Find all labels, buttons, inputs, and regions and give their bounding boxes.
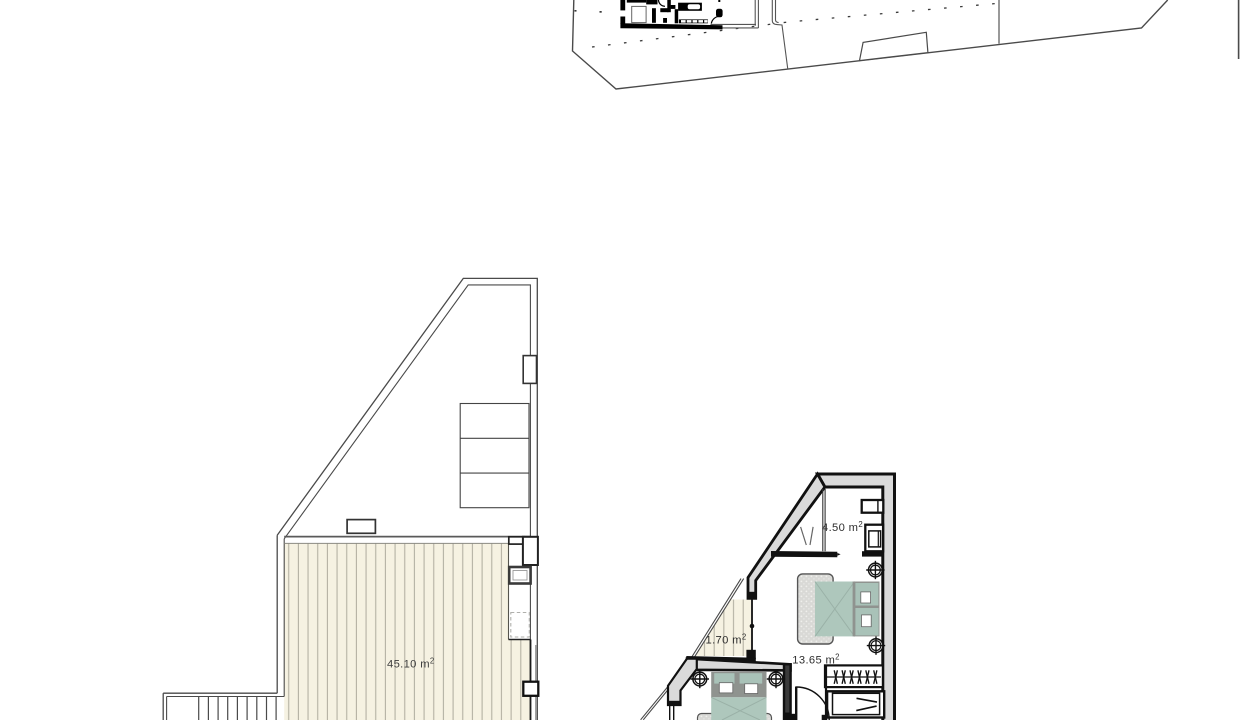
svg-text:45.10 m2: 45.10 m2: [387, 657, 435, 671]
svg-text:4.50 m2: 4.50 m2: [822, 520, 863, 534]
svg-text:13.65 m2: 13.65 m2: [792, 653, 840, 667]
svg-text:1.70 m2: 1.70 m2: [706, 633, 747, 647]
